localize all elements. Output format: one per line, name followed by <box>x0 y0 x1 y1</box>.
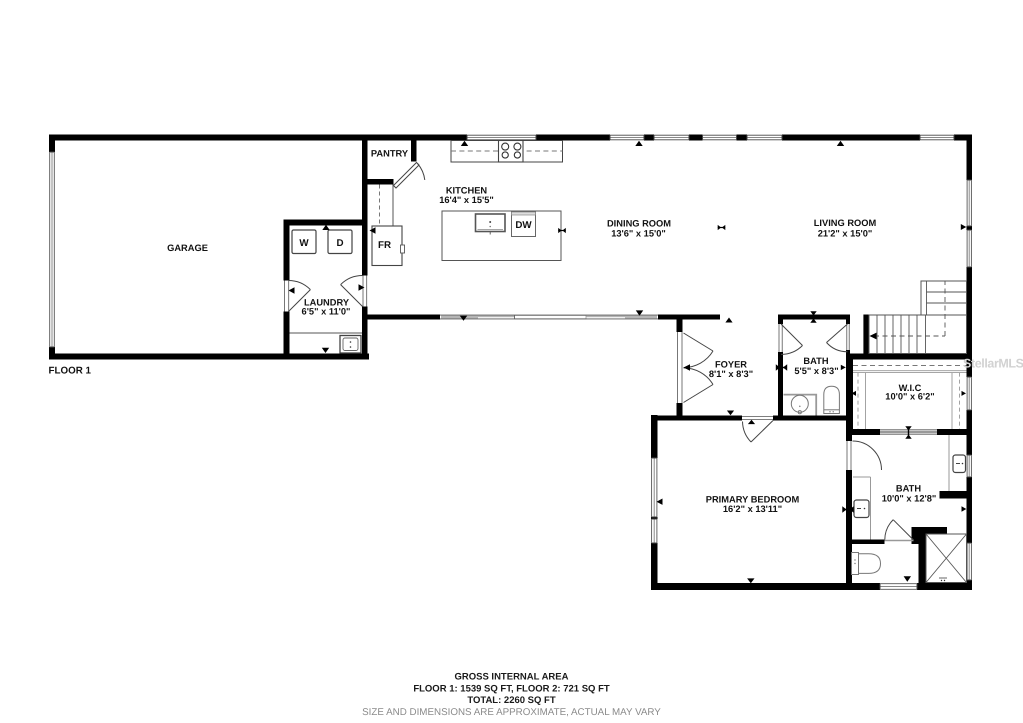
svg-text:FLOOR 1: FLOOR 1 <box>49 366 92 377</box>
svg-text:BATH: BATH <box>896 484 921 494</box>
svg-text:21'2" x 15'0": 21'2" x 15'0" <box>818 228 873 238</box>
svg-text:BATH: BATH <box>803 356 828 366</box>
svg-text:13'6" x 15'0": 13'6" x 15'0" <box>611 229 666 239</box>
svg-text:10'0" x 6'2": 10'0" x 6'2" <box>885 392 934 402</box>
svg-text:StellarMLS: StellarMLS <box>963 357 1023 371</box>
svg-text:10'0" x 12'8": 10'0" x 12'8" <box>882 493 937 503</box>
svg-text:GROSS INTERNAL AREA: GROSS INTERNAL AREA <box>454 672 568 683</box>
svg-text:KITCHEN: KITCHEN <box>446 186 488 196</box>
svg-text:FOYER: FOYER <box>715 360 747 370</box>
svg-text:TOTAL: 2260 SQ FT: TOTAL: 2260 SQ FT <box>467 695 556 706</box>
svg-text:DW: DW <box>515 220 532 231</box>
svg-text:5'5" x 8'3": 5'5" x 8'3" <box>794 366 838 376</box>
svg-text:SIZE AND DIMENSIONS ARE APPROX: SIZE AND DIMENSIONS ARE APPROXIMATE, ACT… <box>362 707 661 718</box>
svg-text:FR: FR <box>378 240 391 251</box>
svg-text:LIVING ROOM: LIVING ROOM <box>814 218 877 228</box>
svg-text:PRIMARY BEDROOM: PRIMARY BEDROOM <box>706 495 800 505</box>
svg-text:16'2" x 13'11": 16'2" x 13'11" <box>723 504 782 514</box>
svg-text:GARAGE: GARAGE <box>167 243 208 253</box>
svg-text:FLOOR 1: 1539 SQ FT, FLOOR 2:: FLOOR 1: 1539 SQ FT, FLOOR 2: 721 SQ FT <box>413 683 610 694</box>
svg-text:W: W <box>299 238 309 249</box>
svg-text:6'5" x 11'0": 6'5" x 11'0" <box>302 306 351 316</box>
svg-text:PANTRY: PANTRY <box>371 149 409 159</box>
svg-text:D: D <box>336 238 343 249</box>
svg-text:8'1" x 8'3": 8'1" x 8'3" <box>709 369 753 379</box>
svg-text:16'4" x 15'5": 16'4" x 15'5" <box>439 195 494 205</box>
svg-text:DINING ROOM: DINING ROOM <box>607 219 671 229</box>
